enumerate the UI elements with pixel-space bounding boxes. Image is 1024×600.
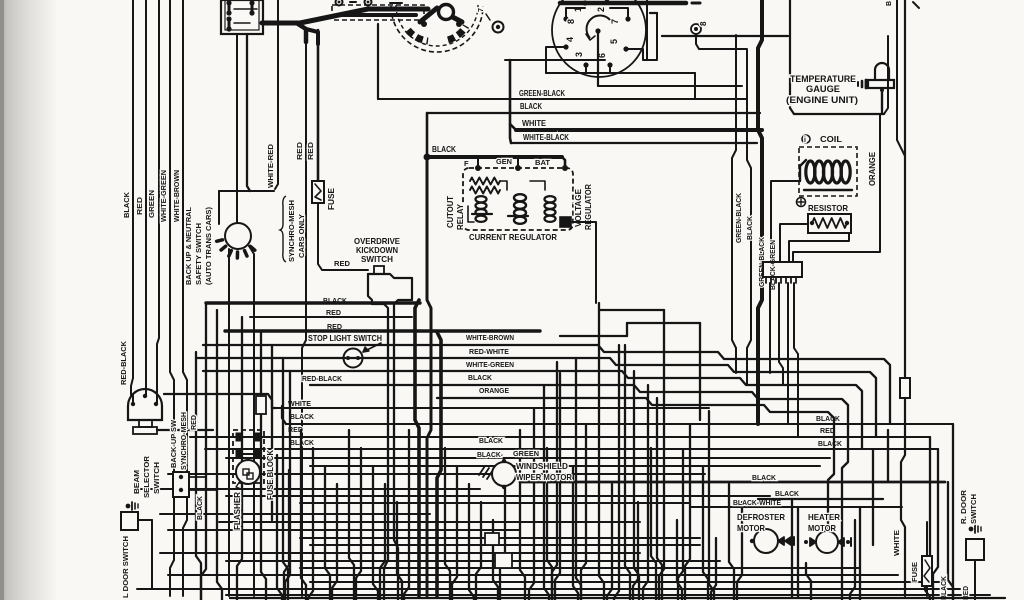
svg-text:MOTOR: MOTOR xyxy=(808,523,836,533)
svg-text:SYNCHRO-MESH: SYNCHRO-MESH xyxy=(179,412,188,470)
svg-text:RED: RED xyxy=(334,259,351,268)
svg-text:BLACK: BLACK xyxy=(468,373,493,382)
svg-text:BLACK: BLACK xyxy=(195,495,204,520)
svg-text:SWITCH: SWITCH xyxy=(152,462,161,494)
svg-text:WIPER MOTOR: WIPER MOTOR xyxy=(516,472,572,482)
svg-text:RED-WHITE: RED-WHITE xyxy=(469,347,509,356)
svg-text:MOTOR: MOTOR xyxy=(737,523,765,533)
svg-text:i: i xyxy=(804,137,806,144)
svg-text:GREEN: GREEN xyxy=(147,190,156,218)
svg-text:WHITE-BROWN: WHITE-BROWN xyxy=(172,170,181,222)
svg-text:8: 8 xyxy=(566,19,576,24)
svg-text:BACK-UP SW: BACK-UP SW xyxy=(169,419,178,468)
svg-text:REGULATOR: REGULATOR xyxy=(584,184,593,230)
svg-text:BEAM: BEAM xyxy=(132,470,141,494)
svg-text:BACK UP & NEUTRAL: BACK UP & NEUTRAL xyxy=(184,207,193,285)
svg-text:4: 4 xyxy=(565,37,575,42)
svg-text:SWITCH: SWITCH xyxy=(361,254,393,264)
svg-text:BLACK: BLACK xyxy=(939,575,948,600)
svg-text:SWITCH: SWITCH xyxy=(969,494,978,524)
svg-text:RELAY: RELAY xyxy=(456,203,465,230)
svg-text:WHITE-GREEN: WHITE-GREEN xyxy=(159,170,168,222)
svg-text:BLACK: BLACK xyxy=(818,439,843,448)
svg-text:RED: RED xyxy=(295,141,304,160)
svg-text:BLACK: BLACK xyxy=(122,191,131,218)
svg-text:L DOOR SWITCH: L DOOR SWITCH xyxy=(121,536,130,598)
svg-text:WHITE: WHITE xyxy=(288,399,311,408)
svg-text:FLASHER: FLASHER xyxy=(233,492,242,530)
svg-text:GREEN-BLACK: GREEN-BLACK xyxy=(519,89,565,98)
svg-text:RED: RED xyxy=(306,141,315,160)
svg-text:COIL: COIL xyxy=(820,134,842,144)
svg-text:CARS ONLY: CARS ONLY xyxy=(297,214,306,258)
svg-text:WHITE-RED: WHITE-RED xyxy=(266,143,275,188)
svg-text:FUSE: FUSE xyxy=(910,562,919,582)
svg-text:R. DOOR: R. DOOR xyxy=(959,489,968,524)
svg-text:5: 5 xyxy=(609,39,619,44)
svg-text:BLACK: BLACK xyxy=(479,436,504,445)
svg-text:ORANGE: ORANGE xyxy=(479,386,509,395)
svg-text:TEMPERATURE: TEMPERATURE xyxy=(790,74,856,84)
svg-text:RED-BLACK: RED-BLACK xyxy=(302,374,343,383)
svg-text:WINDSHIELD: WINDSHIELD xyxy=(516,461,568,471)
svg-text:RED: RED xyxy=(135,196,144,215)
svg-text:BLACK: BLACK xyxy=(290,412,315,421)
svg-text:GREEN: GREEN xyxy=(513,449,539,458)
svg-text:RED: RED xyxy=(191,415,198,430)
svg-text:STOP LIGHT SWITCH: STOP LIGHT SWITCH xyxy=(308,333,382,343)
svg-text:RED-BLACK: RED-BLACK xyxy=(119,340,128,385)
svg-text:GEN: GEN xyxy=(496,157,512,166)
svg-text:BLACK: BLACK xyxy=(290,438,315,447)
svg-text:RESISTOR: RESISTOR xyxy=(808,203,848,213)
svg-text:3: 3 xyxy=(574,52,584,57)
svg-text:ORANGE: ORANGE xyxy=(868,151,877,186)
svg-text:BLACK: BLACK xyxy=(432,145,456,154)
svg-text:WHITE: WHITE xyxy=(892,530,901,556)
svg-text:2: 2 xyxy=(596,7,606,12)
svg-text:BLACK: BLACK xyxy=(745,215,754,240)
svg-text:(AUTO TRANS CARS): (AUTO TRANS CARS) xyxy=(204,206,213,285)
svg-text:FUSE BLOCK: FUSE BLOCK xyxy=(266,450,275,500)
svg-text:RED: RED xyxy=(326,308,342,317)
svg-text:WHITE-BLACK: WHITE-BLACK xyxy=(523,133,569,142)
svg-text:CURRENT REGULATOR: CURRENT REGULATOR xyxy=(469,232,557,242)
svg-text:DEFROSTER: DEFROSTER xyxy=(737,512,785,522)
svg-text:B: B xyxy=(886,1,893,6)
svg-text:WHITE-BROWN: WHITE-BROWN xyxy=(466,333,514,342)
svg-text:FUSE: FUSE xyxy=(327,187,336,210)
svg-text:WHITE-GREEN: WHITE-GREEN xyxy=(466,360,514,369)
svg-text:7: 7 xyxy=(478,8,485,12)
svg-text:F: F xyxy=(464,159,469,168)
svg-text:SAFETY SWITCH: SAFETY SWITCH xyxy=(194,223,203,285)
svg-text:SYNCHRO-MESH: SYNCHRO-MESH xyxy=(287,200,296,262)
svg-text:7: 7 xyxy=(610,19,620,24)
svg-text:BLACK: BLACK xyxy=(752,473,777,482)
svg-text:SELECTOR: SELECTOR xyxy=(142,455,151,498)
svg-text:BLACK-: BLACK- xyxy=(477,450,503,459)
svg-text:CUTOUT: CUTOUT xyxy=(446,196,455,228)
svg-text:BLACK: BLACK xyxy=(520,102,542,111)
svg-text:8: 8 xyxy=(699,21,708,26)
svg-text:(ENGINE UNIT): (ENGINE UNIT) xyxy=(786,95,858,105)
svg-text:BAT: BAT xyxy=(535,158,550,167)
svg-text:BLACK: BLACK xyxy=(816,414,841,423)
svg-text:GAUGE: GAUGE xyxy=(806,84,840,94)
svg-text:GREEN-BLACK: GREEN-BLACK xyxy=(734,192,743,243)
svg-text:HEATER: HEATER xyxy=(808,512,840,522)
svg-text:WHITE: WHITE xyxy=(522,119,547,128)
svg-text:BLACK: BLACK xyxy=(775,489,800,498)
